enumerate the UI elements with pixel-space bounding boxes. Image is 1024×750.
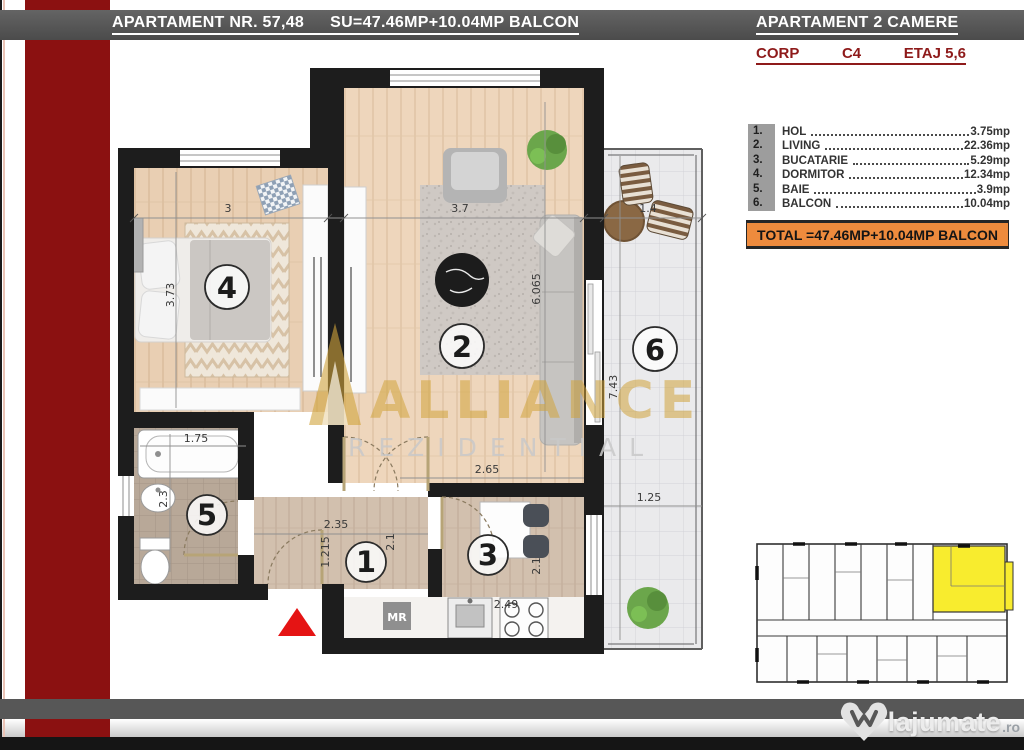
corp-label: CORP [756, 45, 799, 62]
legend-value: 10.04mp [964, 198, 1010, 211]
legend-value: 22.36mp [964, 140, 1010, 153]
legend-no: 6. [748, 197, 775, 212]
legend-row: 5. BAIE 3.9mp [748, 182, 1010, 197]
legend-value: 5.29mp [970, 155, 1010, 168]
highlighted-apartment [933, 546, 1005, 612]
legend-name: BALCON [782, 198, 831, 211]
dim-kitchen-bottom: 2.49 [494, 598, 519, 611]
building-key-plan [753, 536, 1015, 688]
dim-bedroom-width: 3 [225, 202, 232, 215]
pink-accent-line [3, 0, 5, 750]
legend-no: 5. [748, 182, 775, 197]
room-3-number: 3 [478, 538, 498, 572]
armchair-cushion [451, 152, 499, 190]
highlighted-balcony [1005, 562, 1013, 610]
legend-row: 2. LIVING 22.36mp [748, 139, 1010, 154]
legend-no: 3. [748, 153, 775, 168]
bathroom-window [118, 476, 134, 516]
corp-value: C4 [842, 45, 861, 62]
legend-name: HOL [782, 126, 806, 139]
room-6-number: 6 [645, 333, 665, 367]
dim-bedroom-height: 3.73 [164, 283, 177, 308]
dotted-leader [849, 177, 963, 179]
heart-w-icon [840, 701, 888, 743]
apartment-surface: SU=47.46MP+10.04MP BALCON [330, 14, 579, 31]
shaft-label: MR [387, 611, 407, 624]
dim-kitchen-height: 2.1 [530, 557, 543, 575]
bedroom-window [180, 150, 280, 166]
header-band: APARTAMENT NR. 57,48SU=47.46MP+10.04MP B… [0, 10, 1024, 40]
dim-kitchen-width: 2.65 [475, 463, 500, 476]
dim-living-width: 3.7 [451, 202, 469, 215]
legend-row: 3. BUCATARIE 5.29mp [748, 153, 1010, 168]
logo-text: lajumate [888, 707, 1002, 738]
room-1-number: 1 [356, 545, 376, 579]
living-window [390, 70, 540, 86]
legend-name: LIVING [782, 140, 820, 153]
coffee-table [435, 253, 489, 307]
watermark-rezidential: REZIDENTIAL [348, 433, 656, 462]
left-edge-line [0, 0, 2, 750]
apartment-title: APARTAMENT NR. 57,48SU=47.46MP+10.04MP B… [112, 14, 579, 35]
radiator [133, 218, 143, 272]
apartment-type-title: APARTAMENT 2 CAMERE [756, 14, 958, 35]
floor-label: ETAJ 5,6 [904, 45, 966, 62]
watermark-alliance: ALLIANCE [370, 371, 701, 431]
dim-hall-width: 2.35 [324, 518, 349, 531]
entrance-arrow [278, 608, 316, 636]
room-5-number: 5 [197, 498, 217, 532]
floorplan-page: APARTAMENT NR. 57,48SU=47.46MP+10.04MP B… [0, 0, 1024, 750]
wardrobe [303, 185, 328, 391]
red-side-bar [25, 0, 110, 737]
kitchen-faucet [468, 599, 473, 604]
logo-tld: .ro [1002, 719, 1020, 735]
balcony-plant-leaf [631, 606, 647, 622]
dotted-leader [814, 192, 975, 194]
dim-bath-height: 2.3 [157, 490, 170, 508]
kitchen-balcony-door [586, 515, 602, 595]
dim-hall-right: 2.1 [384, 533, 397, 551]
legend-row: 4. DORMITOR 12.34mp [748, 168, 1010, 183]
legend-name: BUCATARIE [782, 155, 848, 168]
dim-balcony-bottom: 1.25 [637, 491, 662, 504]
dotted-leader [836, 206, 963, 208]
toilet [141, 550, 169, 584]
room-4-number: 4 [217, 271, 237, 305]
lajumate-logo[interactable]: lajumate.ro [840, 701, 1020, 743]
room-2-number: 2 [452, 330, 472, 364]
legend-value: 3.9mp [977, 184, 1010, 197]
legend-value: 12.34mp [964, 169, 1010, 182]
dim-living-height: 6.065 [530, 273, 543, 305]
kitchen-chair [523, 504, 549, 527]
legend-no: 2. [748, 139, 775, 154]
toilet-tank [140, 538, 170, 550]
balcony-chair [618, 162, 653, 206]
balcony-table [604, 201, 644, 241]
legend-name: BAIE [782, 184, 809, 197]
dim-balcony-width: 1.4 [639, 202, 657, 215]
bathtub-drain [155, 451, 161, 457]
legend-row: 1. HOL 3.75mp [748, 124, 1010, 139]
legend-value: 3.75mp [970, 126, 1010, 139]
hall-floor [254, 497, 428, 589]
pillow [137, 240, 180, 290]
legend-no: 4. [748, 168, 775, 183]
dim-hall-height: 1.215 [319, 536, 332, 568]
plant-leaf [530, 148, 546, 164]
dotted-leader [853, 163, 969, 165]
legend-name: DORMITOR [782, 169, 844, 182]
dotted-leader [811, 134, 969, 136]
room-legend: 1. HOL 3.75mp 2. LIVING 22.36mp 3. BUCAT… [748, 124, 1010, 211]
kitchen-chair [523, 535, 549, 558]
legend-no: 1. [748, 124, 775, 139]
apartment-number: APARTAMENT NR. 57,48 [112, 14, 304, 31]
balcony-plant-leaf [647, 591, 667, 611]
dim-bathtub-width: 1.75 [184, 432, 209, 445]
total-surface-bar: TOTAL =47.46MP+10.04MP BALCON [746, 220, 1009, 249]
plant-leaf [546, 134, 566, 154]
dotted-leader [825, 148, 963, 150]
corp-info-line: CORP C4 ETAJ 5,6 [756, 45, 966, 65]
apartment-floor-plan: MR [108, 52, 708, 664]
kitchen-sink-bowl [456, 605, 484, 627]
bedroom-bench [140, 388, 300, 410]
legend-row: 6. BALCON 10.04mp [748, 197, 1010, 212]
